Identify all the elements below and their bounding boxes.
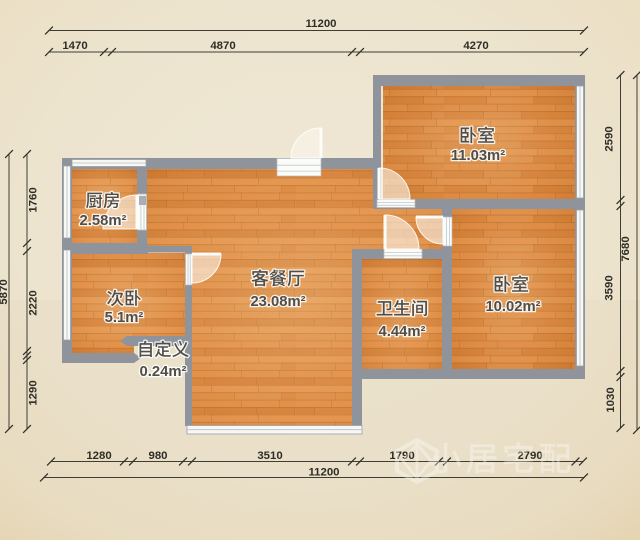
svg-text:1470: 1470: [62, 40, 87, 52]
svg-text:980: 980: [148, 450, 167, 462]
svg-text:10.02m²: 10.02m²: [485, 299, 540, 315]
svg-text:4870: 4870: [210, 40, 235, 52]
svg-text:1290: 1290: [28, 380, 40, 405]
svg-text:5870: 5870: [0, 279, 10, 304]
svg-text:5.1m²: 5.1m²: [105, 310, 144, 326]
svg-text:4.44m²: 4.44m²: [379, 324, 426, 340]
svg-text:2.58m²: 2.58m²: [80, 213, 127, 229]
svg-text:1760: 1760: [28, 187, 40, 212]
svg-text:2220: 2220: [28, 290, 40, 315]
svg-text:0.24m²: 0.24m²: [140, 364, 187, 380]
svg-text:11200: 11200: [305, 18, 336, 30]
svg-text:1030: 1030: [605, 387, 617, 412]
svg-text:11.03m²: 11.03m²: [451, 148, 505, 164]
svg-text:7680: 7680: [620, 236, 632, 261]
svg-text:1280: 1280: [86, 450, 111, 462]
svg-text:3590: 3590: [604, 275, 616, 300]
svg-text:23.08m²: 23.08m²: [250, 294, 305, 310]
svg-text:3510: 3510: [257, 450, 282, 462]
svg-text:4270: 4270: [463, 40, 488, 52]
svg-text:11200: 11200: [308, 467, 339, 479]
svg-text:2590: 2590: [604, 126, 616, 151]
